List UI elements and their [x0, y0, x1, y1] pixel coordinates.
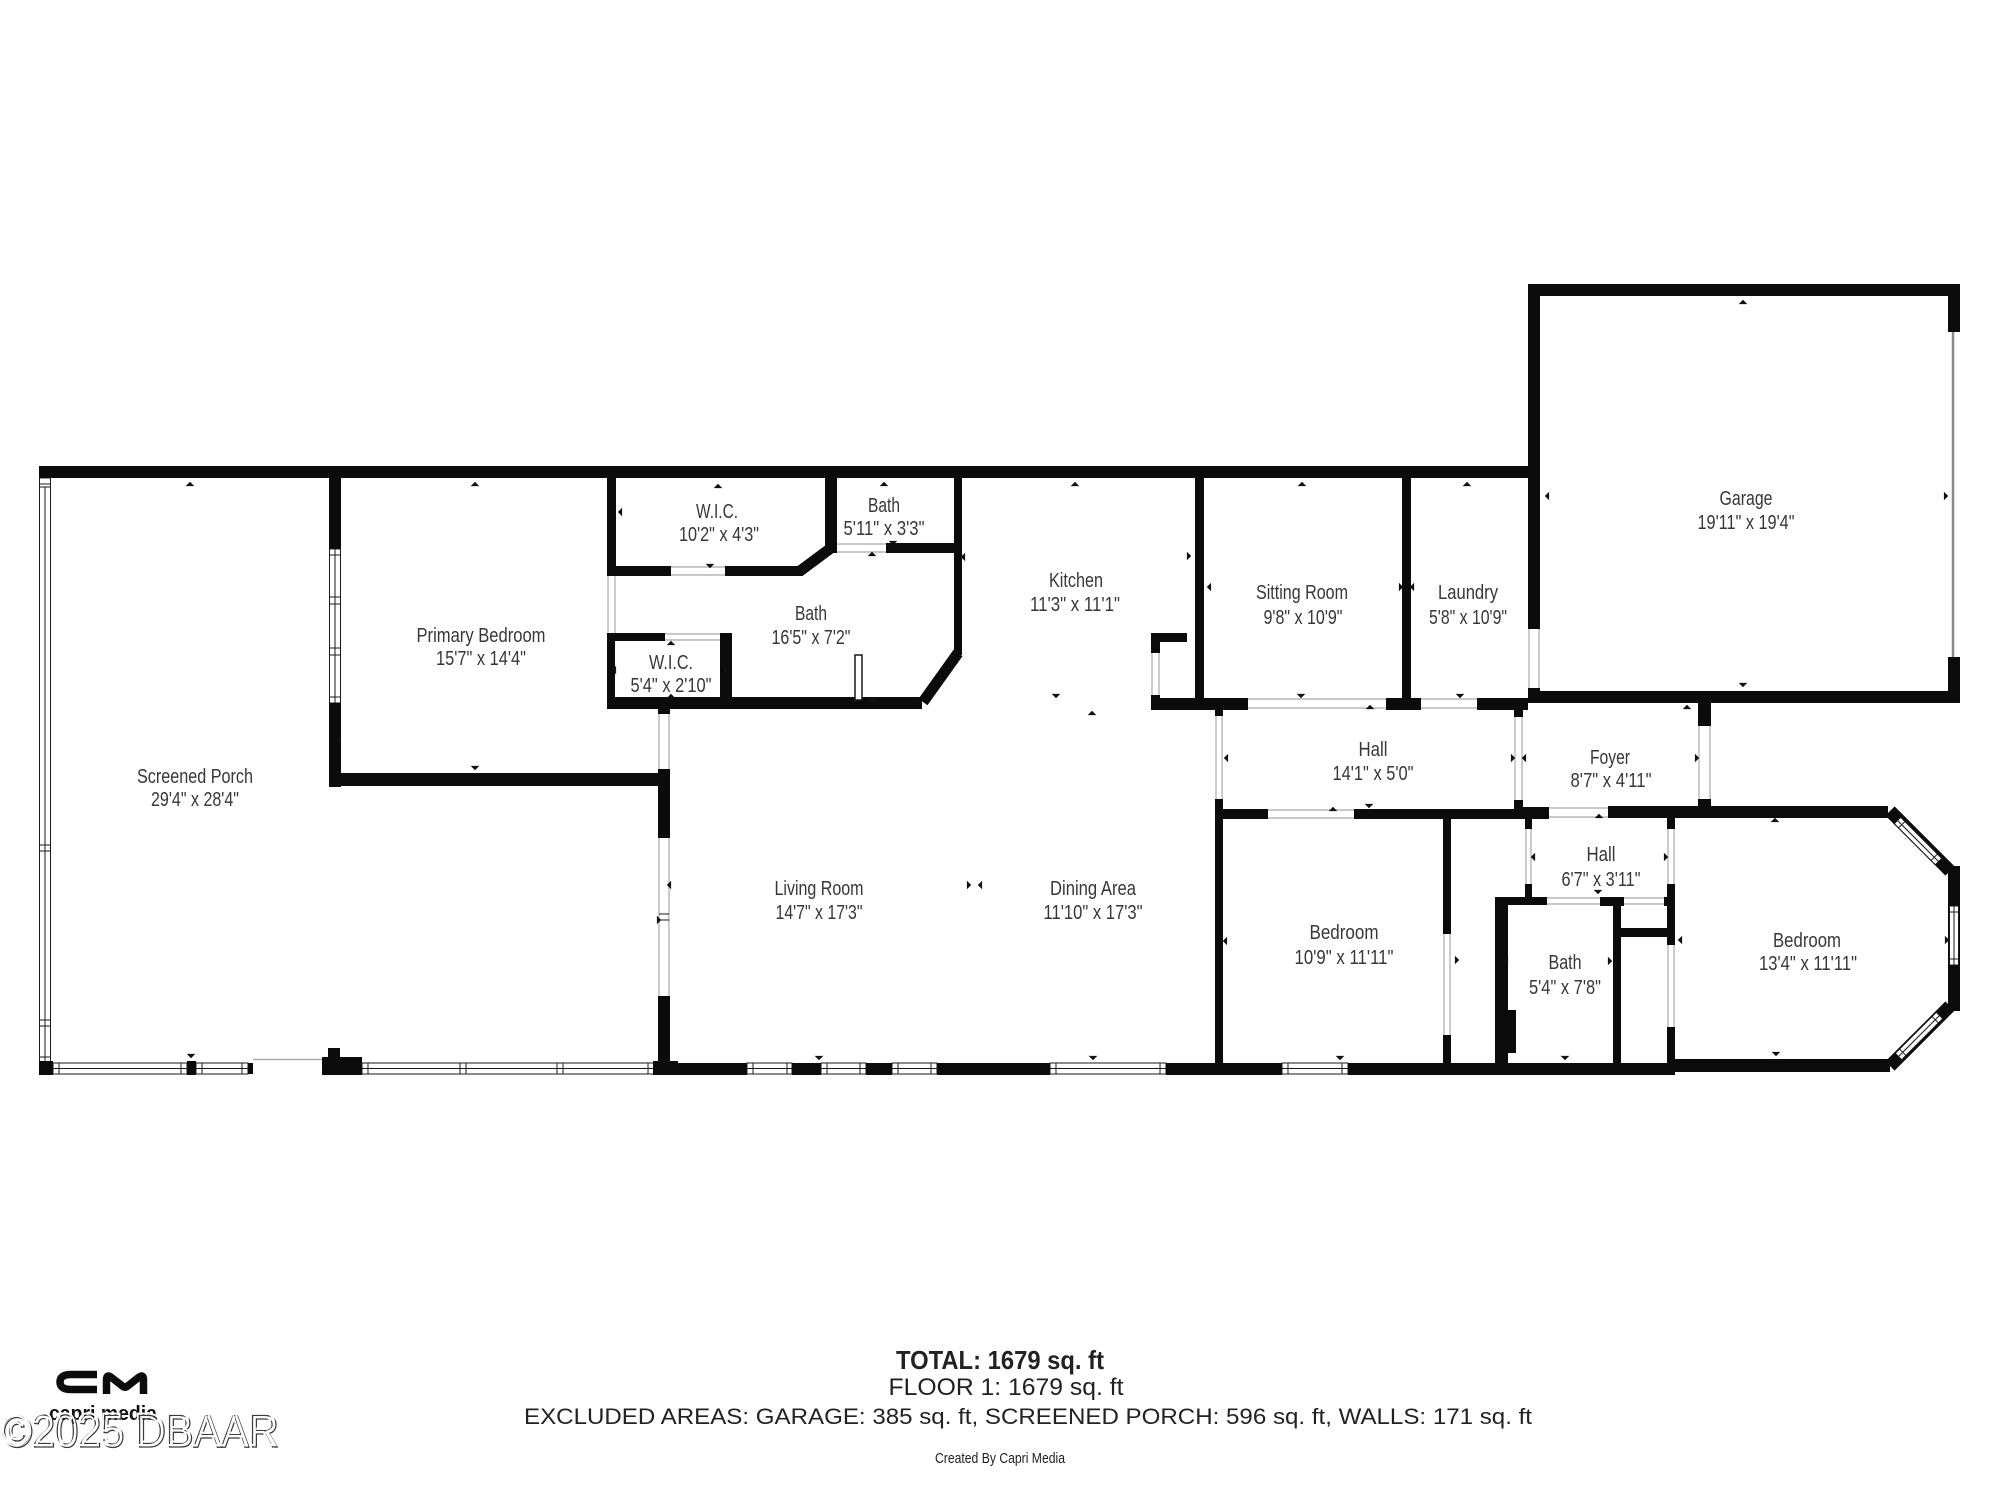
svg-text:14'7" x 17'3": 14'7" x 17'3"	[776, 901, 863, 924]
svg-text:Laundry: Laundry	[1438, 581, 1499, 604]
svg-text:5'4" x 7'8": 5'4" x 7'8"	[1529, 976, 1601, 999]
svg-text:Screened Porch: Screened Porch	[137, 765, 253, 788]
svg-text:Foyer: Foyer	[1590, 746, 1630, 769]
svg-text:14'1" x 5'0": 14'1" x 5'0"	[1333, 762, 1414, 785]
svg-text:Sitting Room: Sitting Room	[1256, 581, 1348, 604]
svg-text:Bath: Bath	[868, 494, 900, 517]
svg-text:Bedroom: Bedroom	[1773, 929, 1841, 952]
svg-text:Created By Capri Media: Created By Capri Media	[935, 1451, 1066, 1467]
svg-text:11'3" x 11'1": 11'3" x 11'1"	[1030, 593, 1120, 616]
svg-text:5'11" x 3'3": 5'11" x 3'3"	[844, 517, 925, 540]
svg-text:19'11" x 19'4": 19'11" x 19'4"	[1698, 511, 1795, 534]
svg-text:Hall: Hall	[1587, 843, 1616, 866]
svg-text:Garage: Garage	[1720, 487, 1773, 510]
svg-text:Hall: Hall	[1359, 738, 1388, 761]
svg-text:5'4" x 2'10": 5'4" x 2'10"	[631, 674, 712, 697]
svg-text:5'8" x 10'9": 5'8" x 10'9"	[1429, 606, 1507, 629]
svg-text:10'2" x 4'3": 10'2" x 4'3"	[679, 523, 759, 546]
svg-text:Living Room: Living Room	[775, 877, 864, 900]
svg-text:EXCLUDED AREAS: GARAGE: 385 sq: EXCLUDED AREAS: GARAGE: 385 sq. ft, SCRE…	[524, 1404, 1533, 1429]
svg-text:29'4" x 28'4": 29'4" x 28'4"	[151, 788, 239, 811]
svg-text:15'7" x 14'4": 15'7" x 14'4"	[436, 647, 526, 670]
svg-text:16'5" x 7'2": 16'5" x 7'2"	[772, 626, 851, 649]
svg-text:Dining Area: Dining Area	[1050, 877, 1136, 900]
svg-text:13'4" x 11'11": 13'4" x 11'11"	[1759, 952, 1857, 975]
svg-text:TOTAL: 1679 sq. ft: TOTAL: 1679 sq. ft	[896, 1345, 1104, 1375]
svg-text:Bath: Bath	[1549, 951, 1582, 974]
svg-text:W.I.C.: W.I.C.	[696, 500, 738, 523]
svg-text:FLOOR 1: 1679 sq. ft: FLOOR 1: 1679 sq. ft	[889, 1374, 1124, 1401]
svg-text:6'7" x 3'11": 6'7" x 3'11"	[1562, 868, 1641, 891]
svg-text:Primary Bedroom: Primary Bedroom	[417, 624, 546, 647]
svg-text:10'9" x 11'11": 10'9" x 11'11"	[1295, 946, 1394, 969]
svg-text:©2025 DBAAR: ©2025 DBAAR	[0, 1404, 277, 1455]
svg-text:Bedroom: Bedroom	[1310, 921, 1379, 944]
svg-text:11'10" x 17'3": 11'10" x 17'3"	[1044, 901, 1143, 924]
svg-text:Bath: Bath	[795, 602, 827, 625]
svg-text:W.I.C.: W.I.C.	[649, 651, 693, 674]
svg-text:9'8" x 10'9": 9'8" x 10'9"	[1264, 606, 1343, 629]
svg-text:8'7" x 4'11": 8'7" x 4'11"	[1571, 769, 1652, 792]
svg-text:Kitchen: Kitchen	[1049, 569, 1103, 592]
